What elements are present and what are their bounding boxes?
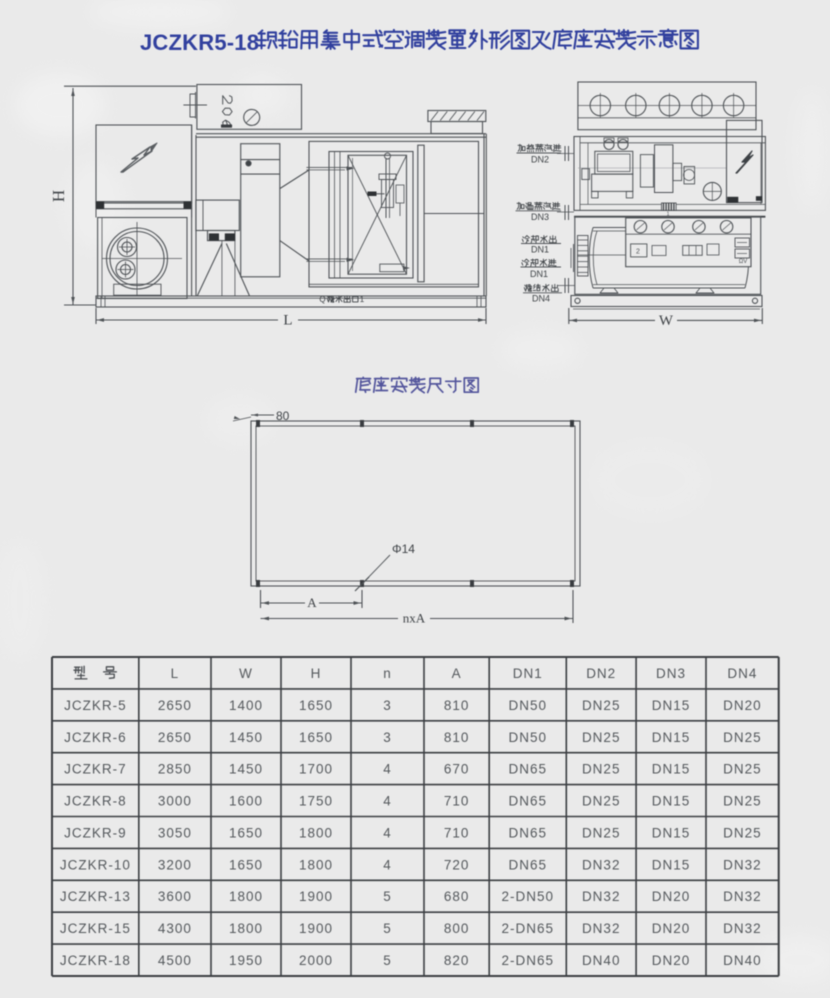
svg-text:1: 1 [360, 295, 365, 304]
svg-text:DN65: DN65 [509, 762, 548, 777]
svg-text:5: 5 [383, 921, 392, 936]
svg-text:DN50: DN50 [509, 730, 548, 745]
svg-text:1450: 1450 [229, 762, 263, 777]
svg-text:3: 3 [383, 730, 392, 745]
svg-text:A: A [307, 595, 317, 610]
svg-text:1600: 1600 [229, 794, 263, 809]
svg-text:4500: 4500 [158, 953, 192, 968]
svg-text:JCZKR-9: JCZKR-9 [64, 826, 127, 841]
svg-text:H: H [49, 190, 68, 202]
svg-text:3: 3 [383, 698, 392, 713]
svg-text:ΩV: ΩV [739, 259, 748, 265]
svg-text:1650: 1650 [299, 698, 333, 713]
svg-text:DN4: DN4 [727, 666, 757, 681]
svg-text:1800: 1800 [229, 889, 263, 904]
svg-text:DN15: DN15 [652, 730, 691, 745]
svg-text:JCZKR-7: JCZKR-7 [64, 762, 127, 777]
svg-text:1750: 1750 [299, 794, 333, 809]
svg-text:2650: 2650 [158, 698, 192, 713]
svg-text:DN65: DN65 [509, 826, 548, 841]
svg-text:810: 810 [444, 698, 470, 713]
svg-text:Q: Q [319, 295, 325, 304]
svg-text:DN15: DN15 [652, 762, 691, 777]
svg-text:DN25: DN25 [582, 762, 621, 777]
svg-text:DN25: DN25 [582, 698, 621, 713]
svg-text:2650: 2650 [158, 730, 192, 745]
svg-text:DN40: DN40 [723, 953, 762, 968]
svg-text:W: W [659, 313, 674, 329]
svg-text:4: 4 [383, 857, 392, 872]
svg-text:820: 820 [444, 953, 470, 968]
svg-text:4: 4 [383, 826, 392, 841]
svg-text:2: 2 [636, 249, 640, 256]
svg-text:810: 810 [444, 730, 470, 745]
svg-text:L: L [171, 666, 180, 681]
svg-text:1900: 1900 [299, 889, 333, 904]
svg-text:2-DN65: 2-DN65 [502, 953, 555, 968]
svg-text:5: 5 [383, 889, 392, 904]
svg-text:JCZKR-10: JCZKR-10 [60, 857, 131, 872]
svg-text:3600: 3600 [158, 889, 192, 904]
svg-text:4: 4 [383, 762, 392, 777]
svg-text:H: H [311, 666, 322, 681]
svg-text:JCZKR-5: JCZKR-5 [64, 698, 127, 713]
svg-text:DN25: DN25 [723, 730, 762, 745]
svg-text:L: L [283, 313, 292, 329]
svg-text:DN32: DN32 [582, 921, 621, 936]
svg-text:A: A [452, 666, 462, 681]
svg-text:JCZKR-18: JCZKR-18 [60, 953, 131, 968]
svg-text:1400: 1400 [229, 698, 263, 713]
svg-text:DN2: DN2 [531, 155, 549, 165]
svg-text:1650: 1650 [229, 857, 263, 872]
svg-text:2-DN50: 2-DN50 [502, 889, 555, 904]
svg-text:DN32: DN32 [723, 921, 762, 936]
svg-text:DN32: DN32 [723, 889, 762, 904]
svg-text:DN25: DN25 [582, 794, 621, 809]
svg-text:DN1: DN1 [513, 666, 543, 681]
svg-text:2-DN65: 2-DN65 [502, 921, 555, 936]
svg-text:DN20: DN20 [652, 921, 691, 936]
svg-text:DN15: DN15 [652, 698, 691, 713]
svg-text:DN50: DN50 [509, 698, 548, 713]
svg-text:DN20: DN20 [652, 889, 691, 904]
svg-text:DN25: DN25 [723, 826, 762, 841]
svg-text:1800: 1800 [229, 921, 263, 936]
svg-text:710: 710 [444, 794, 470, 809]
svg-text:JCZKR-8: JCZKR-8 [64, 794, 127, 809]
svg-text:80: 80 [276, 409, 290, 423]
svg-text:2000: 2000 [299, 953, 333, 968]
svg-text:DN32: DN32 [723, 857, 762, 872]
svg-text:Φ14: Φ14 [392, 542, 415, 556]
svg-text:W: W [239, 666, 253, 681]
svg-text:JCZKR-6: JCZKR-6 [64, 730, 127, 745]
svg-text:DN15: DN15 [652, 794, 691, 809]
svg-text:670: 670 [444, 762, 470, 777]
svg-text:1450: 1450 [229, 730, 263, 745]
svg-text:DN3: DN3 [531, 212, 549, 222]
svg-text:nxA: nxA [403, 611, 426, 626]
svg-text:n: n [383, 666, 392, 681]
svg-text:JCZKR5-18: JCZKR5-18 [140, 30, 259, 55]
svg-text:3050: 3050 [158, 826, 192, 841]
svg-text:1800: 1800 [299, 857, 333, 872]
svg-text:DN32: DN32 [582, 889, 621, 904]
svg-text:JCZKR-15: JCZKR-15 [60, 921, 131, 936]
svg-text:DN1: DN1 [530, 269, 548, 279]
svg-text:DN25: DN25 [723, 762, 762, 777]
svg-text:DN20: DN20 [723, 698, 762, 713]
svg-text:4300: 4300 [158, 921, 192, 936]
svg-text:1650: 1650 [229, 826, 263, 841]
svg-text:3000: 3000 [158, 794, 192, 809]
svg-text:720: 720 [444, 857, 470, 872]
svg-text:DN25: DN25 [723, 794, 762, 809]
svg-text:DN2: DN2 [586, 666, 616, 681]
svg-text:1950: 1950 [229, 953, 263, 968]
svg-text:4: 4 [383, 794, 392, 809]
svg-text:DN15: DN15 [652, 857, 691, 872]
svg-text:DN15: DN15 [652, 826, 691, 841]
svg-text:DN65: DN65 [509, 857, 548, 872]
svg-text:JCZKR-13: JCZKR-13 [60, 889, 131, 904]
svg-text:710: 710 [444, 826, 470, 841]
svg-text:680: 680 [444, 889, 470, 904]
svg-text:DN32: DN32 [582, 857, 621, 872]
svg-text:3200: 3200 [158, 857, 192, 872]
svg-text:DN1: DN1 [531, 244, 549, 254]
svg-text:DN3: DN3 [656, 666, 686, 681]
svg-text:2850: 2850 [158, 762, 192, 777]
svg-text:800: 800 [444, 921, 470, 936]
svg-text:DN25: DN25 [582, 826, 621, 841]
svg-text:1650: 1650 [299, 730, 333, 745]
svg-text:1700: 1700 [299, 762, 333, 777]
svg-text:5: 5 [383, 953, 392, 968]
svg-text:DN4: DN4 [532, 294, 550, 304]
svg-text:1900: 1900 [299, 921, 333, 936]
svg-text:DN25: DN25 [582, 730, 621, 745]
svg-text:DN65: DN65 [509, 794, 548, 809]
svg-text:DN40: DN40 [582, 953, 621, 968]
svg-text:1800: 1800 [299, 826, 333, 841]
svg-text:DN20: DN20 [652, 953, 691, 968]
